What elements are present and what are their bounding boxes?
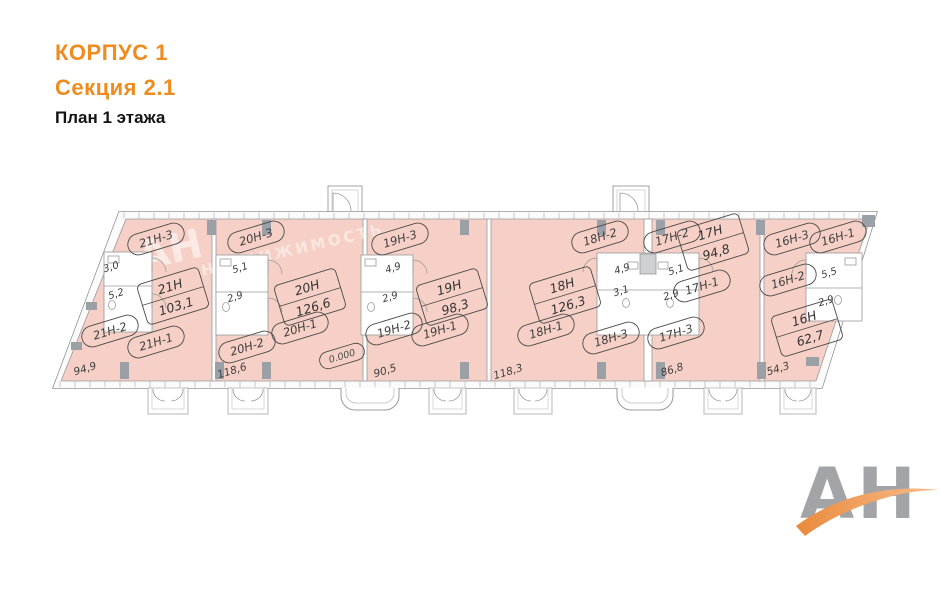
porch — [228, 388, 268, 414]
column — [806, 357, 819, 366]
page: КОРПУС 1 Секция 2.1 План 1 этажа — [0, 0, 941, 600]
top-vestibules — [328, 186, 649, 214]
column — [207, 220, 216, 235]
logo-swoosh-icon — [792, 478, 941, 538]
porch-curved — [617, 388, 673, 410]
porch — [514, 388, 552, 414]
porch — [429, 388, 466, 414]
porch — [780, 388, 816, 414]
column — [597, 362, 606, 379]
column — [756, 220, 765, 235]
column — [757, 362, 766, 379]
column — [86, 302, 97, 310]
column — [460, 362, 469, 379]
porch-curved — [341, 388, 399, 410]
agency-logo: АН — [792, 452, 941, 540]
column — [120, 362, 129, 379]
porch — [704, 388, 742, 414]
column — [262, 362, 271, 379]
column — [71, 342, 82, 350]
porch — [148, 388, 188, 414]
column — [460, 220, 469, 235]
